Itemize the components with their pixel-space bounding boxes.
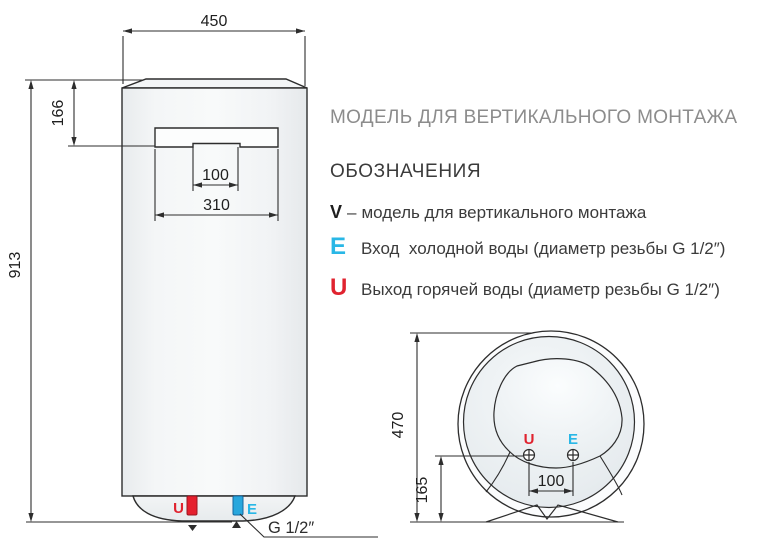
cold-inlet-e-label: E [247, 501, 257, 518]
control-panel [155, 128, 278, 147]
legend-item-vertical-model: V – модель для вертикального монтажа [330, 202, 646, 223]
hot-outlet-u-label: U [524, 431, 535, 448]
heater-top-bevel [122, 79, 307, 88]
dim-height-label: 913 [7, 252, 24, 279]
legend-heading: ОБОЗНАЧЕНИЯ [330, 161, 481, 183]
thread-size-label: G 1/2″ [268, 519, 314, 537]
legend-symbol-e: E [330, 236, 361, 258]
cold-inlet-port-symbol [568, 450, 579, 461]
heater-bottom-dome [133, 496, 295, 521]
cold-inlet-e-label: E [568, 431, 578, 448]
legend-item-cold-inlet: E Вход холодной воды (диаметр резьбы G 1… [330, 236, 725, 259]
cold-inlet-pipe [233, 496, 243, 515]
dim-panel-width-label: 310 [203, 197, 230, 214]
page-title: МОДЕЛЬ ДЛЯ ВЕРТИКАЛЬНОГО МОНТАЖА [330, 107, 737, 129]
legend-separator: – [347, 203, 356, 223]
dim-width-label: 450 [201, 13, 228, 30]
water-heater-spec-sheet: 450 166 913 100 [0, 0, 780, 556]
heater-body [122, 88, 307, 496]
hot-outlet-port-symbol [524, 450, 535, 461]
center-mark-down-icon [188, 525, 197, 531]
legend-text-v: модель для вертикального монтажа [361, 203, 646, 223]
hot-outlet-pipe [187, 496, 197, 515]
legend-text-u: Выход горячей воды (диаметр резьбы G 1/2… [361, 280, 720, 300]
legend-item-hot-outlet: U Выход горячей воды (диаметр резьбы G 1… [330, 277, 720, 300]
legend-symbol-u: U [330, 277, 361, 299]
dim-depth-label: 470 [390, 412, 407, 439]
dim-panel-offset-label: 166 [50, 100, 67, 127]
legend-symbol-v: V [330, 202, 342, 223]
center-mark-up-icon [232, 521, 241, 528]
bottom-view-diagram: 470 165 U E [388, 318, 660, 556]
legend-text-e: Вход холодной воды (диаметр резьбы G 1/2… [361, 239, 725, 259]
dimension-width-450 [123, 28, 305, 86]
hot-outlet-u-label: U [173, 500, 184, 517]
dim-ports-offset-label: 165 [414, 477, 431, 504]
dim-ports-spacing-label: 100 [538, 473, 565, 490]
dim-panel-cutout-label: 100 [202, 167, 229, 184]
